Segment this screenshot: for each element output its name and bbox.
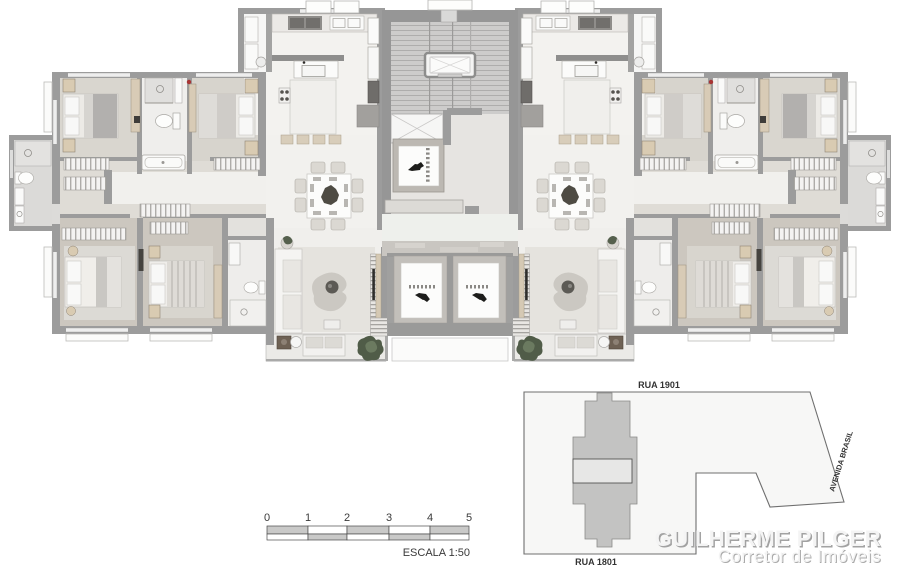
- svg-text:RUA 1901: RUA 1901: [638, 380, 680, 390]
- svg-text:4: 4: [427, 512, 433, 524]
- svg-text:0: 0: [264, 512, 270, 524]
- svg-text:ESCALA 1:50: ESCALA 1:50: [403, 547, 470, 559]
- svg-text:1: 1: [305, 512, 311, 524]
- svg-text:Corretor de Imóveis: Corretor de Imóveis: [718, 546, 881, 566]
- svg-text:RUA 1801: RUA 1801: [575, 557, 617, 567]
- svg-text:5: 5: [466, 512, 472, 524]
- svg-text:3: 3: [386, 512, 392, 524]
- svg-text:2: 2: [344, 512, 350, 524]
